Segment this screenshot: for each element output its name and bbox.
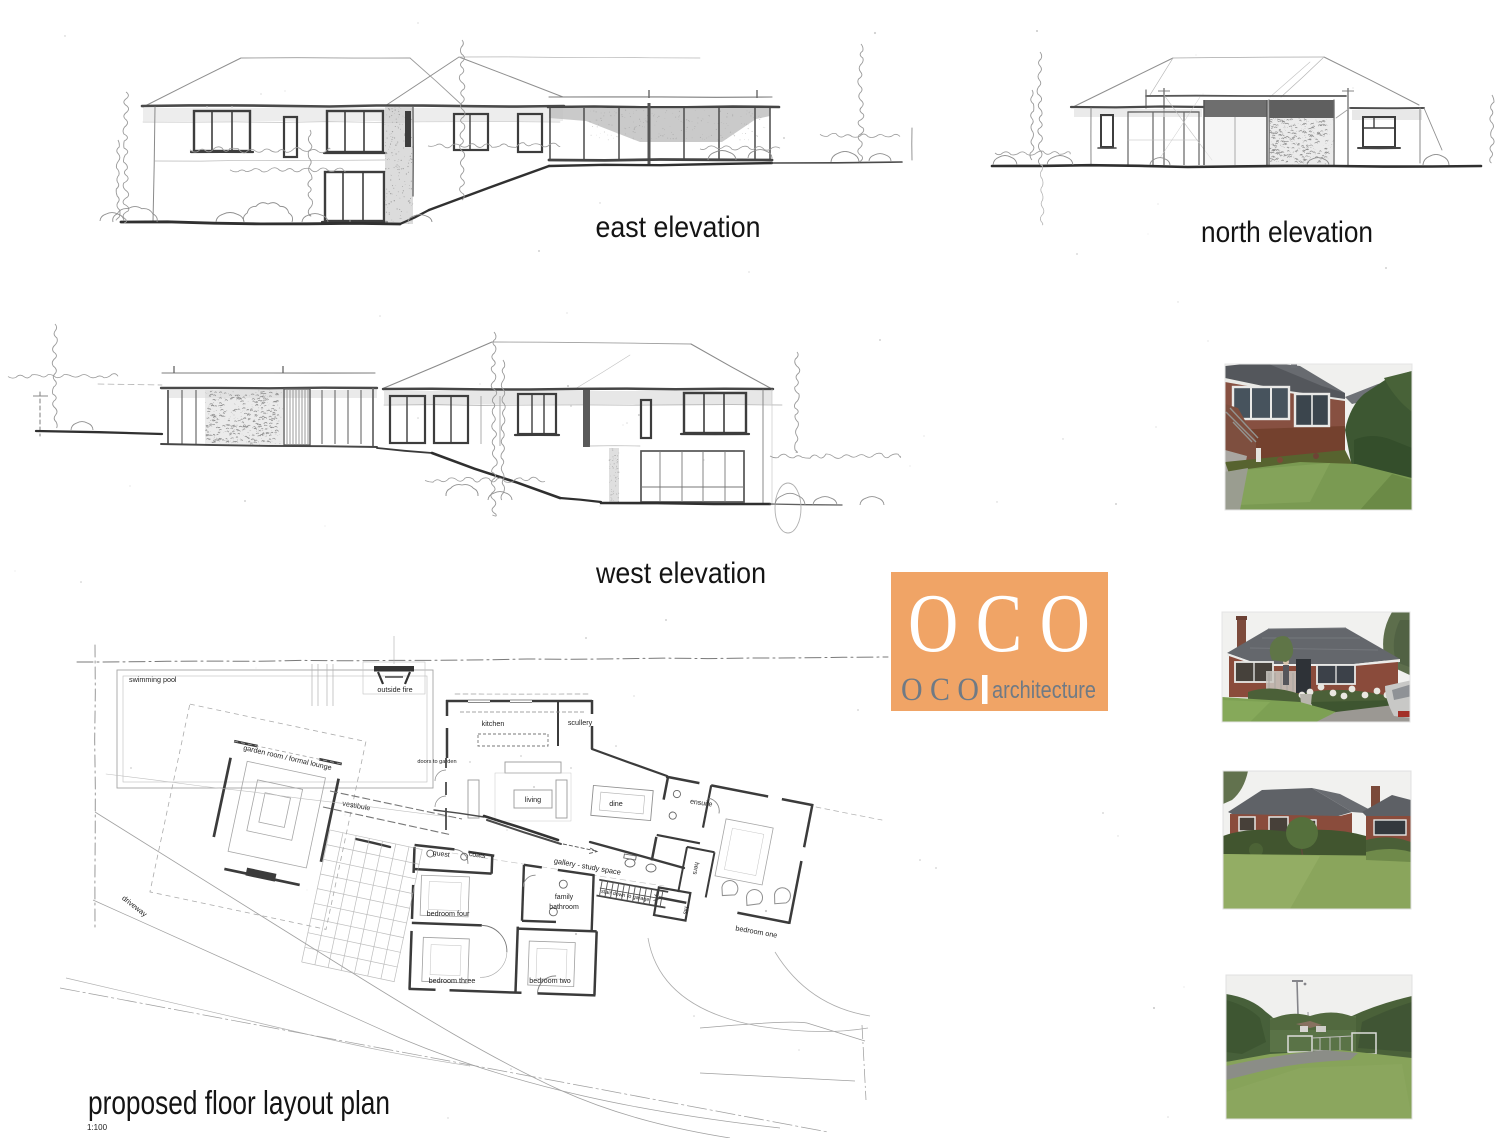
svg-text:architecture: architecture	[992, 677, 1096, 704]
svg-text:O C O: O C O	[901, 672, 979, 708]
svg-text:kitchen: kitchen	[482, 719, 505, 728]
svg-text:bedroom one: bedroom one	[735, 923, 778, 939]
svg-text:outside fire: outside fire	[377, 685, 412, 694]
svg-text:scullery: scullery	[568, 718, 593, 727]
svg-text:his: his	[681, 906, 688, 915]
svg-text:bedroom four: bedroom four	[427, 909, 470, 918]
svg-text:living: living	[525, 795, 541, 804]
svg-text:bedroom two: bedroom two	[529, 976, 571, 985]
svg-text:dine: dine	[609, 799, 623, 808]
svg-text:guest: guest	[432, 850, 450, 859]
svg-text:doors to garden: doors to garden	[417, 759, 456, 765]
svg-text:family: family	[555, 894, 574, 901]
svg-text:north elevation: north elevation	[1201, 216, 1373, 249]
svg-text:coats: coats	[468, 851, 486, 860]
svg-text:bedroom three: bedroom three	[429, 976, 476, 985]
svg-text:east elevation: east elevation	[596, 211, 761, 244]
svg-text:driveway: driveway	[120, 894, 149, 919]
svg-text:vestibule: vestibule	[342, 799, 372, 813]
svg-text:1:100: 1:100	[87, 1123, 108, 1132]
svg-text:garden room / formal lounge: garden room / formal lounge	[243, 743, 333, 772]
svg-text:proposed floor layout plan: proposed floor layout plan	[88, 1084, 390, 1121]
svg-text:hers: hers	[691, 862, 700, 875]
svg-text:O C O: O C O	[908, 577, 1090, 670]
svg-text:west elevation: west elevation	[595, 557, 766, 590]
svg-text:bathroom: bathroom	[549, 904, 579, 911]
svg-text:swimming pool: swimming pool	[129, 675, 177, 684]
